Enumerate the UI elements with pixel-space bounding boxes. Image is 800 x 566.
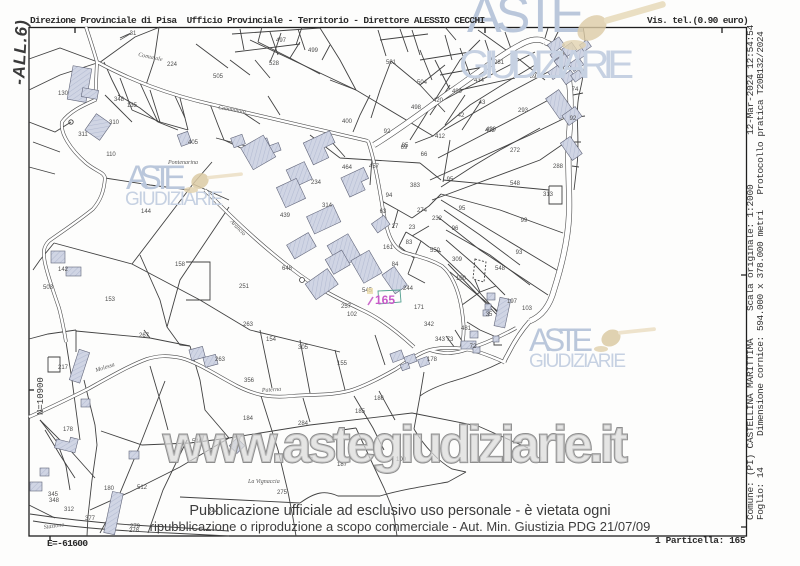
svg-text:GIUDIZIARIE: GIUDIZIARIE <box>125 189 223 210</box>
svg-text:92: 92 <box>384 129 391 135</box>
svg-text:251: 251 <box>239 284 250 290</box>
svg-text:180: 180 <box>104 486 115 492</box>
svg-text:ASTE: ASTE <box>467 0 585 44</box>
svg-text:412: 412 <box>435 134 446 140</box>
svg-text:185: 185 <box>355 409 366 415</box>
svg-text:257: 257 <box>341 304 352 310</box>
svg-text:100: 100 <box>456 276 467 282</box>
svg-text:171: 171 <box>414 305 425 311</box>
svg-text:504: 504 <box>417 80 428 86</box>
svg-text:23: 23 <box>409 225 416 231</box>
svg-text:165: 165 <box>375 293 395 307</box>
svg-text:110: 110 <box>106 152 116 158</box>
svg-text:www.astegiudiziarie.it: www.astegiudiziarie.it <box>162 416 628 474</box>
svg-text:178: 178 <box>63 427 74 433</box>
svg-text:498: 498 <box>411 105 422 111</box>
svg-text:343: 343 <box>435 337 446 343</box>
svg-text:313: 313 <box>543 192 554 198</box>
svg-text:499: 499 <box>308 48 319 54</box>
svg-text:348: 348 <box>114 97 125 103</box>
svg-text:481: 481 <box>461 326 472 332</box>
svg-text:155: 155 <box>337 361 348 367</box>
svg-text:232: 232 <box>432 216 443 222</box>
svg-text:83: 83 <box>406 240 413 246</box>
svg-text:GIUDIZIARIE: GIUDIZIARIE <box>529 351 626 372</box>
svg-text:548: 548 <box>510 181 521 187</box>
svg-text:400: 400 <box>342 119 353 125</box>
svg-text:93: 93 <box>516 250 523 256</box>
svg-text:103: 103 <box>522 306 533 312</box>
svg-text:512: 512 <box>137 485 148 491</box>
svg-text:-ALL.6): -ALL.6) <box>9 19 31 85</box>
svg-text:63: 63 <box>380 209 387 215</box>
svg-text:405: 405 <box>188 140 199 146</box>
svg-text:31: 31 <box>130 31 137 37</box>
svg-text:154: 154 <box>266 337 277 343</box>
svg-text:528: 528 <box>269 61 280 67</box>
svg-text:102: 102 <box>347 312 358 318</box>
svg-text:550: 550 <box>430 248 441 254</box>
svg-text:499: 499 <box>452 89 463 95</box>
svg-text:GIUDIZIARIE: GIUDIZIARIE <box>459 43 634 87</box>
svg-text:135: 135 <box>127 103 138 109</box>
svg-text:439: 439 <box>280 213 291 219</box>
svg-text:505: 505 <box>213 74 224 80</box>
svg-text:648: 648 <box>282 266 293 272</box>
svg-text:94: 94 <box>386 193 393 199</box>
svg-text:234: 234 <box>311 180 322 186</box>
svg-text:244: 244 <box>403 286 414 292</box>
svg-text:263: 263 <box>243 322 254 328</box>
svg-text:99: 99 <box>521 218 528 224</box>
svg-text:186: 186 <box>374 396 385 402</box>
svg-text:288: 288 <box>553 164 564 170</box>
svg-text:96: 96 <box>452 226 459 232</box>
svg-text:43: 43 <box>479 100 486 106</box>
svg-text:92: 92 <box>570 116 577 122</box>
svg-text:85: 85 <box>402 143 409 149</box>
svg-text:Paterna: Paterna <box>261 387 282 394</box>
svg-text:66: 66 <box>421 152 428 158</box>
svg-text:158: 158 <box>175 262 186 268</box>
svg-text:161: 161 <box>383 245 394 251</box>
svg-text:305: 305 <box>298 345 309 351</box>
svg-text:27: 27 <box>392 224 399 230</box>
svg-text:420: 420 <box>433 98 444 104</box>
svg-text:197: 197 <box>507 299 518 305</box>
svg-text:84: 84 <box>392 262 399 268</box>
svg-text:464: 464 <box>342 165 353 171</box>
svg-text:548: 548 <box>495 266 506 272</box>
svg-text:275: 275 <box>277 490 288 496</box>
svg-text:72: 72 <box>470 344 477 350</box>
svg-text:309: 309 <box>452 257 463 263</box>
svg-text:267: 267 <box>139 333 150 339</box>
svg-text:Comunale: Comunale <box>138 52 164 63</box>
svg-text:497: 497 <box>276 38 287 44</box>
svg-text:314: 314 <box>322 203 333 209</box>
svg-text:383: 383 <box>410 183 421 189</box>
svg-text:274: 274 <box>417 208 428 214</box>
svg-text:342: 342 <box>424 322 435 328</box>
svg-text:130: 130 <box>58 91 69 97</box>
svg-text:272: 272 <box>510 148 521 154</box>
svg-text:153: 153 <box>105 297 116 303</box>
svg-text:263: 263 <box>215 357 226 363</box>
svg-text:503: 503 <box>43 285 54 291</box>
svg-text:432: 432 <box>485 128 496 134</box>
svg-text:35: 35 <box>486 312 493 318</box>
svg-text:N=10900: N=10900 <box>36 377 46 415</box>
svg-text:74: 74 <box>572 87 579 93</box>
svg-text:42: 42 <box>458 113 465 119</box>
svg-text:142: 142 <box>58 267 69 273</box>
svg-text:457: 457 <box>369 164 380 170</box>
svg-text:224: 224 <box>167 62 178 68</box>
svg-text:356: 356 <box>244 378 255 384</box>
svg-text:Foglio: 14 Dimensione cor: Foglio: 14 Dimensione cornice: 594.000 x… <box>755 31 766 520</box>
svg-text:293: 293 <box>518 108 529 114</box>
svg-text:La Vignaccia: La Vignaccia <box>247 479 280 485</box>
svg-text:178: 178 <box>427 357 438 363</box>
svg-text:Camminata: Camminata <box>218 105 247 115</box>
svg-text:73: 73 <box>447 337 454 343</box>
svg-text:Molessa: Molessa <box>94 362 116 374</box>
svg-text:95: 95 <box>459 206 466 212</box>
svg-text:310: 310 <box>109 120 120 126</box>
svg-text:501: 501 <box>386 60 397 66</box>
svg-text:95: 95 <box>447 177 454 183</box>
svg-text:217: 217 <box>58 365 69 371</box>
svg-text:311: 311 <box>78 132 88 138</box>
